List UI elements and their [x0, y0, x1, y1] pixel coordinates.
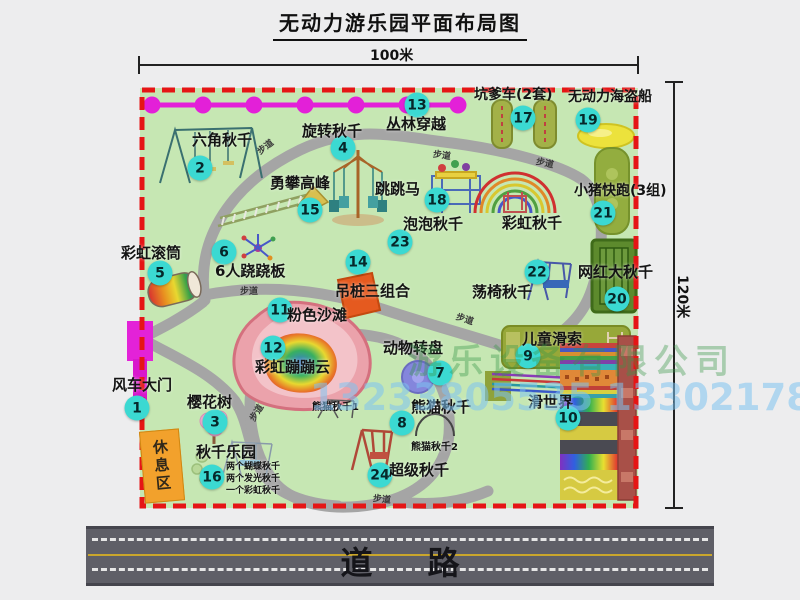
dimension-height-label: 120米 — [673, 275, 693, 318]
item-label-6: 6人跷跷板 — [215, 264, 285, 280]
marker-2: 2 — [188, 156, 213, 181]
marker-14: 14 — [346, 250, 371, 275]
marker-15: 15 — [298, 198, 323, 223]
marker-5: 5 — [148, 261, 173, 286]
dimension-tick — [665, 507, 683, 509]
extra-label: 一个彩虹秋千 — [226, 487, 280, 496]
page-title: 无动力游乐园平面布局图 — [273, 7, 527, 41]
item-label-22: 荡椅秋千 — [472, 285, 532, 301]
extra-label: 彩虹秋千 — [502, 216, 562, 232]
item-label-19: 无动力海盗船 — [568, 90, 652, 105]
marker-3: 3 — [203, 410, 228, 435]
item-label-20: 网红大秋千 — [578, 265, 653, 281]
item-label-18: 跳跳马 — [375, 182, 420, 198]
marker-22: 22 — [525, 260, 550, 285]
marker-18: 18 — [425, 188, 450, 213]
marker-19: 19 — [576, 108, 601, 133]
marker-20: 20 — [605, 287, 630, 312]
road: 道路 — [86, 526, 714, 586]
walkway-label: 步道 — [240, 284, 258, 297]
item-label-17: 坑爹车(2套) — [474, 88, 553, 103]
extra-label: 两个蝴蝶秋千 — [226, 463, 280, 472]
marker-13: 13 — [405, 93, 430, 118]
item-label-12: 彩虹蹦蹦云 — [255, 360, 330, 376]
dimension-tick — [665, 81, 683, 83]
item-label-16: 秋千乐园 — [196, 445, 256, 461]
item-label-21: 小猪快跑(3组) — [574, 184, 667, 199]
marker-1: 1 — [125, 396, 150, 421]
dimension-tick — [138, 56, 140, 74]
map-overlay: 1风车大门2六角秋千3樱花树4旋转秋千5彩虹滚筒66人跷跷板7动物转盘8熊猫秋千… — [140, 88, 638, 508]
walkway-label: 步道 — [372, 491, 391, 506]
item-label-15: 勇攀高峰 — [270, 176, 330, 192]
walkway-label: 步道 — [535, 154, 555, 170]
walkway-label: 步道 — [254, 136, 276, 157]
park-map: 休息区 1风车大门2六角秋千3樱花树4旋转秋千5彩虹滚筒66人跷跷板7动物转盘8… — [140, 88, 638, 508]
item-label-13: 丛林穿越 — [386, 117, 446, 133]
item-label-5: 彩虹滚筒 — [121, 246, 181, 262]
walkway-label: 步道 — [454, 310, 475, 328]
walkway-label: 步道 — [246, 401, 267, 423]
walkway-label: 步道 — [432, 147, 452, 162]
marker-6: 6 — [212, 240, 237, 265]
item-label-14: 吊桩三组合 — [335, 284, 410, 300]
watermark-phone: 13233805535 13302178333 — [310, 376, 800, 419]
marker-23: 23 — [388, 230, 413, 255]
marker-21: 21 — [591, 201, 616, 226]
marker-16: 16 — [200, 465, 225, 490]
extra-label: 两个发光秋千 — [226, 475, 280, 484]
item-label-2: 六角秋千 — [192, 133, 252, 149]
item-label-3: 樱花树 — [187, 395, 232, 411]
item-label-24: 超级秋千 — [389, 463, 449, 479]
item-label-11: 粉色沙滩 — [287, 308, 347, 324]
item-label-23: 泡泡秋千 — [403, 217, 463, 233]
dimension-tick — [637, 56, 639, 74]
marker-12: 12 — [261, 336, 286, 361]
dimension-width-label: 100米 — [370, 45, 413, 65]
layout-plan-page: 无动力游乐园平面布局图 100米 120米 — [0, 0, 800, 600]
marker-17: 17 — [511, 106, 536, 131]
item-label-1: 风车大门 — [112, 378, 172, 394]
road-label: 道路 — [86, 538, 714, 584]
item-label-4: 旋转秋千 — [302, 124, 362, 140]
extra-label: 熊猫秋千2 — [411, 443, 458, 454]
